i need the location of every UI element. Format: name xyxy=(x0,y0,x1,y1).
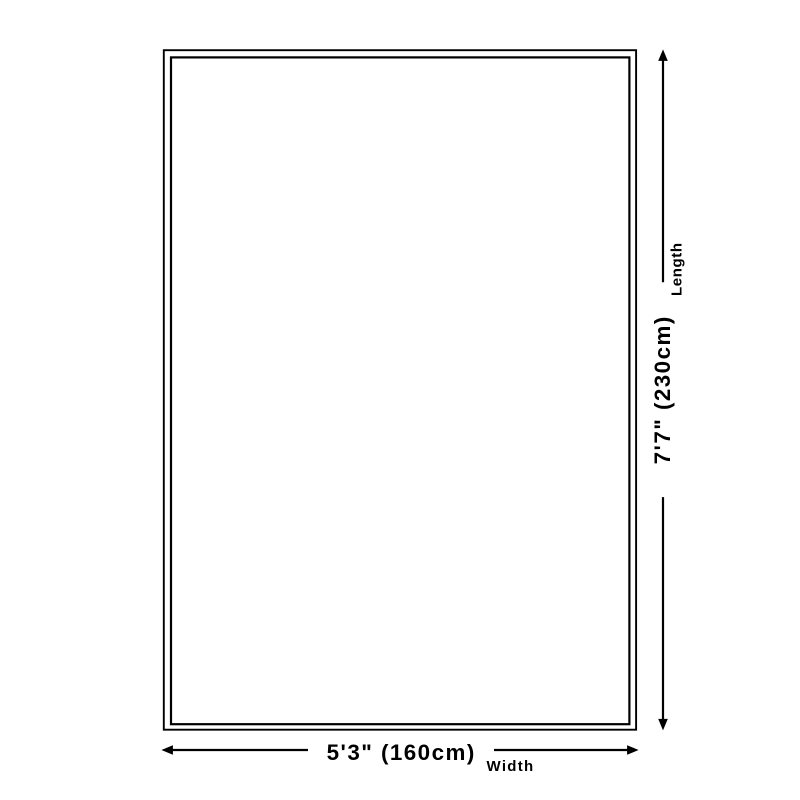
svg-text:5'3" (160cm): 5'3" (160cm) xyxy=(327,740,476,765)
svg-text:Length: Length xyxy=(669,242,686,296)
svg-text:Width: Width xyxy=(487,758,535,775)
svg-text:7'7" (230cm): 7'7" (230cm) xyxy=(650,315,675,464)
